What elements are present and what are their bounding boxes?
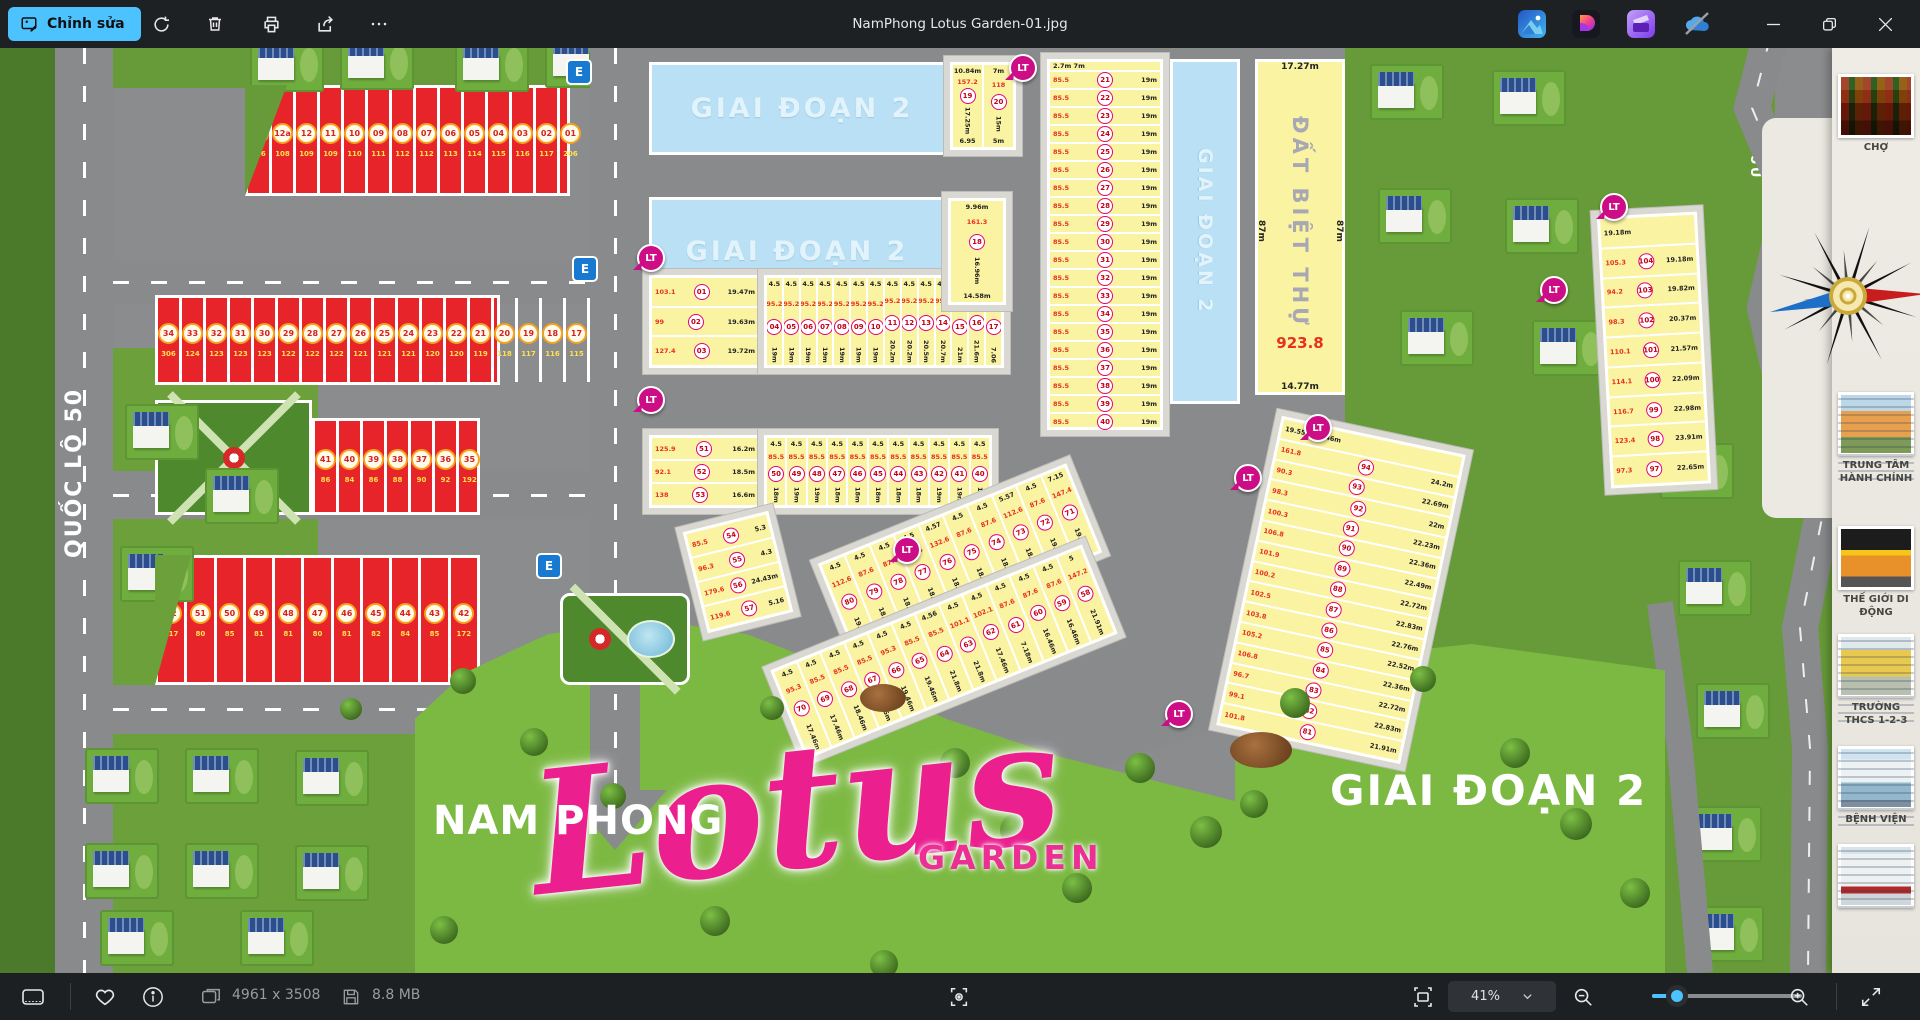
sidebar-caption: THẾ GIỚI DI ĐỘNG — [1838, 594, 1914, 619]
lot-cell: 4.595.21019m — [868, 278, 885, 365]
divider — [1836, 983, 1837, 1010]
onedrive-paused-icon[interactable] — [1682, 10, 1710, 38]
lot-cell: 85.52119m — [1050, 72, 1160, 90]
lot-cell: 125.95116.2m — [652, 438, 758, 461]
lot-cell: 97.39722.65m — [1613, 453, 1708, 486]
tree — [450, 668, 476, 694]
print-icon[interactable] — [248, 4, 294, 44]
marker-lt: LT — [1540, 276, 1568, 304]
tgdd-photo — [1838, 526, 1914, 590]
tree — [430, 916, 458, 944]
clipchamp-app-icon[interactable] — [1627, 10, 1655, 38]
lot-cell: 85.52619m — [1050, 162, 1160, 180]
lot-cell: 4.585.55018m — [767, 438, 787, 505]
hospital-photo — [1838, 746, 1914, 810]
rocks — [1230, 732, 1292, 768]
lot-cell: 4.585.54119m — [950, 438, 970, 505]
lot-cell: 85.53619m — [1050, 342, 1160, 360]
lot-col-97-104: 19.18m105.310419.18m94.210319.82m98.3102… — [1597, 212, 1711, 489]
lot-cell: 4.585.54718m — [828, 438, 848, 505]
sidebar-caption: CHỢ — [1838, 142, 1914, 155]
visual-search-icon[interactable] — [944, 982, 974, 1012]
park-pond — [560, 593, 690, 685]
lot-block-19-20: 10.84m157.21917.25m6.957m1182015m5m — [950, 62, 1016, 150]
tree — [1500, 738, 1530, 768]
admin-photo — [1838, 392, 1914, 456]
window-title: NamPhong Lotus Garden-01.jpg — [760, 16, 1160, 32]
marker-lt: LT — [1600, 193, 1628, 221]
zoom-slider[interactable] — [1652, 994, 1802, 998]
lot-cell: 4.595.20919m — [851, 278, 868, 365]
close-button[interactable] — [1862, 0, 1908, 48]
divider — [70, 983, 71, 1010]
dimensions-icon — [196, 982, 226, 1012]
lot-cell: 85.53419m — [1050, 306, 1160, 324]
lot-cell: 4.585.54919m — [787, 438, 807, 505]
lot-cell: 4.585.54819m — [808, 438, 828, 505]
tree — [1190, 816, 1222, 848]
minimize-button[interactable] — [1750, 0, 1796, 48]
lot-cell: 85.52319m — [1050, 108, 1160, 126]
lot-cell: 4.585.54518m — [869, 438, 889, 505]
zoom-out-icon[interactable] — [1568, 982, 1598, 1012]
lot-cell: 4.595.20519m — [784, 278, 801, 365]
sidebar-item: CHỢ — [1838, 74, 1914, 155]
lot-cell: 85.52819m — [1050, 198, 1160, 216]
sidebar-item: TRUNG TÂM HÀNH CHÍNH — [1838, 392, 1914, 485]
compass-icon — [1768, 216, 1920, 376]
phase2-green-label: GIAI ĐOẠN 2 — [1330, 766, 1647, 815]
marker-e: E — [566, 59, 592, 85]
zoom-level-value: 41% — [1471, 989, 1500, 1004]
lot-cell: 92.15218.5m — [652, 461, 758, 484]
lot-cell: 4.595.20619m — [801, 278, 818, 365]
lot-block-01-03: 103.10119.47m990219.63m127.40319.72m — [649, 275, 761, 368]
lot-cell: 85.53319m — [1050, 288, 1160, 306]
fit-to-window-icon[interactable] — [1408, 982, 1438, 1012]
villa-land-strip: 17.27m ĐẤT BIỆT THỰ 923.8 14.77m 87m 87m — [1255, 59, 1345, 395]
tree — [1125, 753, 1155, 783]
fullscreen-icon[interactable] — [1856, 982, 1886, 1012]
lot-cell: 85.53719m — [1050, 360, 1160, 378]
sidebar-item: TRƯỜNG THCS 1-2-3 — [1838, 634, 1914, 727]
lot-strip-40-50: 4.585.55018m4.585.54919m4.585.54819m4.58… — [764, 435, 992, 508]
titlebar: Chỉnh sửa NamPhong Lotus Garden-01.jpg — [0, 0, 1920, 48]
filesize-icon — [336, 982, 366, 1012]
zoom-in-icon[interactable] — [1784, 982, 1814, 1012]
image-dimensions: 4961 x 3508 — [232, 987, 320, 1003]
sidebar-item: THẾ GIỚI DI ĐỘNG — [1838, 526, 1914, 619]
favorite-icon[interactable] — [90, 982, 120, 1012]
lot-cell: 85.53819m — [1050, 378, 1160, 396]
logo-nam-phong: NAM PHONG — [433, 798, 723, 844]
lot-cell: 85.52719m — [1050, 180, 1160, 198]
chevron-down-icon — [1522, 991, 1533, 1002]
lot-cell: 85.53219m — [1050, 270, 1160, 288]
tree — [1620, 878, 1650, 908]
sidebar-item — [1838, 844, 1914, 908]
photos-app-icon[interactable] — [1518, 10, 1546, 38]
school-photo — [1838, 634, 1914, 698]
rotate-icon[interactable] — [138, 4, 184, 44]
tree — [1240, 790, 1268, 818]
delete-icon[interactable] — [192, 4, 238, 44]
marker-lt: LT — [1304, 414, 1332, 442]
zoom-level-dropdown[interactable]: 41% — [1448, 981, 1556, 1012]
tree — [1560, 808, 1592, 840]
tree — [340, 698, 362, 720]
lot-cell: 4.585.54219m — [930, 438, 950, 505]
lot-cell: 4.585.54318m — [910, 438, 930, 505]
tree — [1280, 688, 1310, 718]
zoom-slider-thumb[interactable] — [1666, 985, 1688, 1007]
lot-cell: 4.595.20819m — [834, 278, 851, 365]
statusbar: 4961 x 3508 8.8 MB 41% — [0, 973, 1920, 1020]
lot-cell: 990219.63m — [652, 308, 758, 338]
lot-cell: 4.595.20419m — [767, 278, 784, 365]
marker-e: E — [572, 256, 598, 282]
lot-cell: 127.40319.72m — [652, 337, 758, 365]
lot-cell: 85.53919m — [1050, 396, 1160, 414]
marker-lt: LT — [637, 386, 665, 414]
lot-block-18: 9.96m161.31816.96m14.58m — [948, 198, 1006, 305]
logo-garden: GARDEN — [918, 838, 1104, 877]
lot-cell: 4.585.54418m — [889, 438, 909, 505]
bank-photo — [1838, 844, 1914, 908]
file-size: 8.8 MB — [372, 987, 420, 1003]
legend-sidebar: CHỢTRUNG TÂM HÀNH CHÍNHTHẾ GIỚI DI ĐỘNGT… — [1832, 48, 1920, 973]
lot-cell: 85.52519m — [1050, 144, 1160, 162]
lot-cell: 4.595.20719m — [818, 278, 835, 365]
lot-col-21-40: 2.7m 7m85.52119m85.52219m85.52319m85.524… — [1047, 59, 1163, 430]
info-icon[interactable] — [138, 982, 168, 1012]
market-photo — [1838, 74, 1914, 138]
marker-lt: LT — [1234, 464, 1262, 492]
lot-cell: 1385316.6m — [652, 484, 758, 505]
edit-image-icon — [20, 15, 38, 33]
photo-canvas[interactable]: QUỐC LỘ 50 ĐƯỜNG HIỆN HỮU ĐƯỜNG HIỆN HỮU… — [0, 48, 1920, 973]
marker-lt: LT — [1009, 54, 1037, 82]
lot-cell: 85.54019m — [1050, 414, 1160, 430]
strip-header: 2.7m 7m — [1050, 62, 1160, 72]
lot-cell: 85.53519m — [1050, 324, 1160, 342]
share-icon[interactable] — [302, 4, 348, 44]
lot-cell: 85.52219m — [1050, 90, 1160, 108]
marker-lt: LT — [1165, 700, 1193, 728]
designer-app-icon[interactable] — [1572, 10, 1600, 38]
tree — [1410, 666, 1436, 692]
sidebar-item: BỆNH VIỆN — [1838, 746, 1914, 827]
lot-cell: 4.585.54618m — [848, 438, 868, 505]
tree — [870, 950, 898, 973]
lot-cell: 9.96m161.31816.96m14.58m — [951, 201, 1003, 302]
lot-cell: 85.52919m — [1050, 216, 1160, 234]
marker-e: E — [536, 553, 562, 579]
lot-cell: 85.53019m — [1050, 234, 1160, 252]
lot-cell: 85.52419m — [1050, 126, 1160, 144]
more-icon[interactable] — [356, 4, 402, 44]
lot-cell: 4.595.21220.2m — [902, 278, 919, 365]
lot-block-51-53: 125.95116.2m92.15218.5m1385316.6m — [649, 435, 761, 508]
lot-cell: 103.10119.47m — [652, 278, 758, 308]
marker-lt: LT — [893, 536, 921, 564]
lot-cell: 4.595.21320.5m — [919, 278, 936, 365]
marker-lt: LT — [637, 244, 665, 272]
edit-button[interactable]: Chỉnh sửa — [8, 7, 141, 41]
lot-cell: 85.53119m — [1050, 252, 1160, 270]
lot-cell: 10.84m157.21917.25m6.95 — [953, 65, 984, 147]
restore-button[interactable] — [1806, 0, 1852, 48]
filmstrip-icon[interactable] — [18, 982, 48, 1012]
lot-cell: 4.595.21120.2m — [885, 278, 902, 365]
